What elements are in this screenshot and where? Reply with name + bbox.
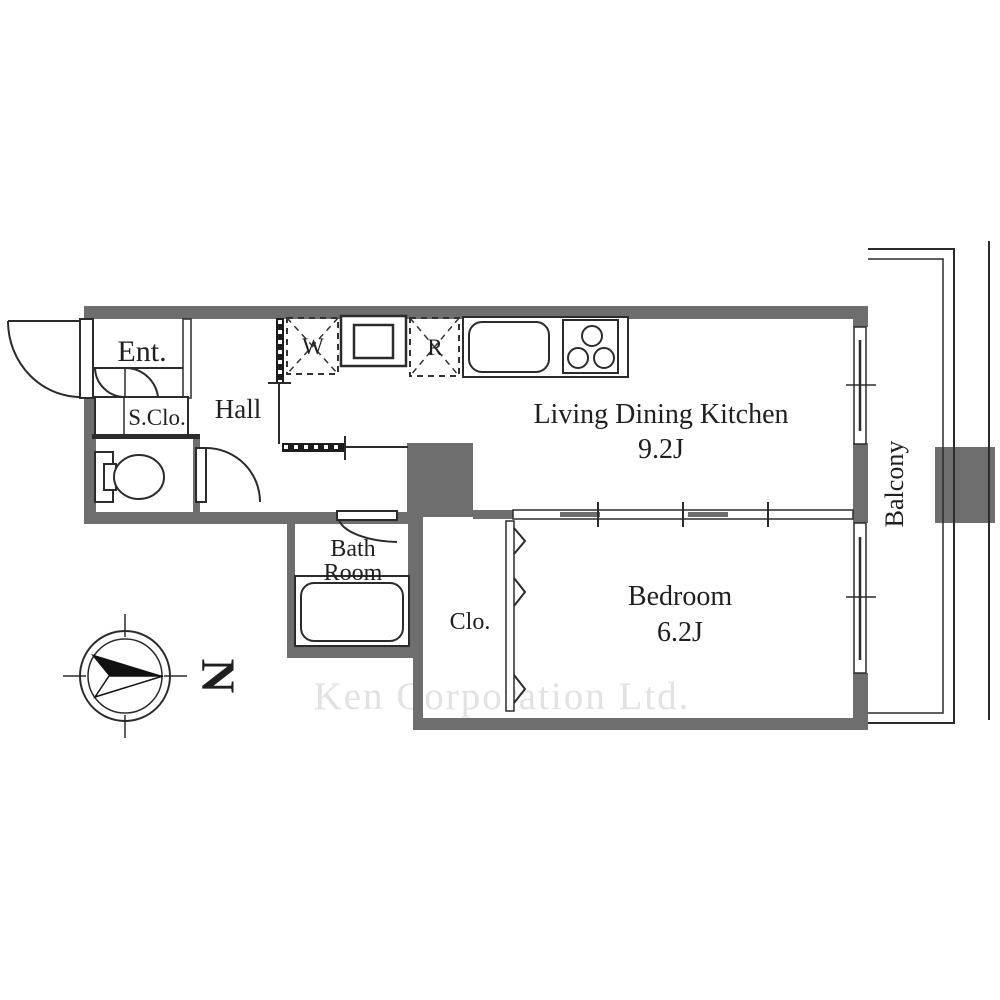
hall-label: Hall [215, 394, 262, 424]
stove-icon [563, 320, 618, 373]
wall-bath-left [287, 524, 295, 652]
balcony-divider-panel [935, 447, 995, 523]
toilet-door-icon [196, 448, 260, 502]
wall-bedroom-bottom [413, 718, 868, 730]
bedroom-size-label: 6.2J [657, 617, 703, 648]
bathtub-icon [295, 576, 409, 646]
sink-icon [469, 322, 549, 372]
ent-hall-partition [183, 319, 191, 398]
floor-plan-canvas: Ken Corporation Ltd. [0, 0, 1000, 1000]
bathroom-label-line1: Bath [330, 536, 375, 562]
shoe-closet-label: S.Clo. [128, 405, 186, 430]
ldk-label: Living Dining Kitchen [533, 399, 788, 430]
hall-sliding-door-icon [282, 436, 408, 460]
shoe-closet-doors-icon [93, 368, 188, 397]
entrance-label: Ent. [117, 335, 166, 368]
wall-bath-closet-divider [408, 517, 423, 658]
wall-right-middle [853, 443, 868, 523]
compass-icon: N [63, 614, 244, 738]
wall-bath-bottom [287, 646, 423, 658]
bedroom-window-icon [846, 523, 876, 673]
north-label: N [191, 659, 244, 694]
kitchen-sliding-door-icon [268, 318, 291, 444]
kitchen-counter-icon [463, 317, 628, 377]
refrigerator-space: R [410, 318, 459, 376]
washer-space: W [287, 318, 338, 374]
compass-needle-outline [95, 676, 163, 697]
closet-label: Clo. [450, 609, 491, 635]
bedroom-sliding-partition [513, 502, 853, 527]
pipe-space-block [407, 443, 473, 517]
compass-needle-filled [91, 654, 163, 676]
entrance-door-icon [8, 319, 93, 398]
refrigerator-label: R [427, 335, 443, 360]
floor-plan: Ken Corporation Ltd. [0, 0, 1000, 1000]
ldk-size-label: 9.2J [638, 434, 684, 465]
wall-right-lower [853, 673, 868, 730]
toilet-icon [95, 452, 164, 502]
ldk-window-icon [846, 327, 876, 444]
watermark-text: Ken Corporation Ltd. [314, 675, 691, 718]
wall-right-upper [853, 306, 868, 327]
bedroom-label: Bedroom [628, 581, 732, 612]
balcony-label: Balcony [880, 441, 909, 528]
kitchen-cabinet-icon [341, 316, 406, 366]
washer-label: W [302, 334, 324, 359]
bathroom-label-line2: Room [324, 560, 383, 586]
wall-closet-top-stub [473, 510, 517, 519]
